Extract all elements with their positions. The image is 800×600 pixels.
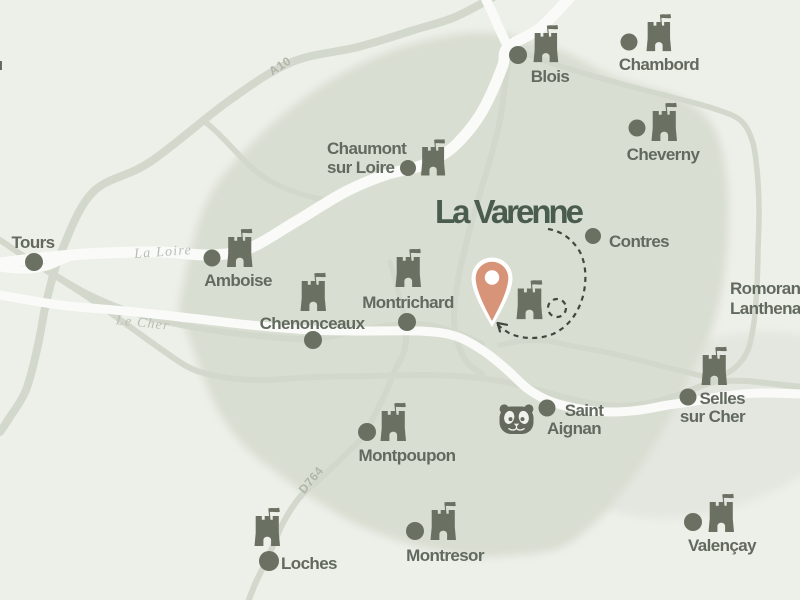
svg-text:Saint: Saint [565, 401, 605, 420]
svg-text:Contres: Contres [609, 232, 669, 251]
svg-text:Valençay: Valençay [688, 536, 757, 555]
svg-text:Montrichard: Montrichard [362, 293, 454, 312]
svg-text:Lanthenay: Lanthenay [730, 299, 800, 318]
svg-text:du: du [0, 55, 3, 74]
svg-text:Selles: Selles [699, 389, 745, 408]
svg-text:Chaumont: Chaumont [327, 139, 407, 158]
svg-text:Cheverny: Cheverny [627, 145, 701, 164]
svg-text:sur Cher: sur Cher [680, 407, 746, 426]
svg-text:sur Loire: sur Loire [327, 158, 394, 177]
svg-text:Chenonceaux: Chenonceaux [260, 314, 366, 333]
svg-text:Amboise: Amboise [204, 271, 272, 290]
svg-text:Blois: Blois [531, 67, 570, 86]
svg-text:Aignan: Aignan [547, 419, 601, 438]
svg-text:Montresor: Montresor [406, 546, 485, 565]
svg-text:Chambord: Chambord [619, 55, 699, 74]
svg-text:Tours: Tours [12, 233, 55, 252]
svg-text:Loches: Loches [281, 554, 337, 573]
svg-text:Romorantin-: Romorantin- [730, 279, 800, 298]
svg-text:La Varenne: La Varenne [435, 193, 584, 230]
svg-text:Montpoupon: Montpoupon [359, 446, 456, 465]
